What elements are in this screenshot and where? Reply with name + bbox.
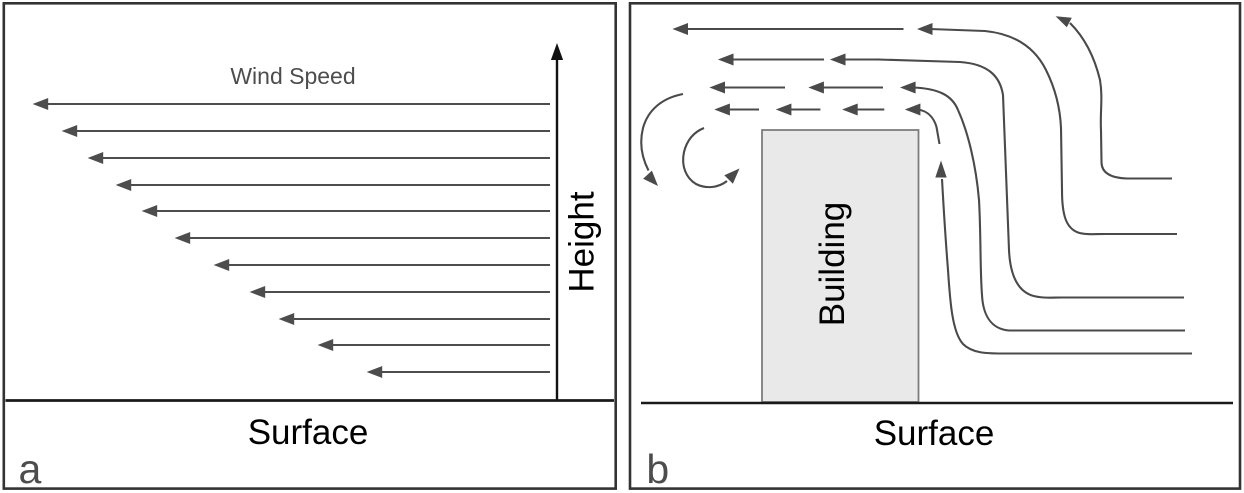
svg-text:b: b <box>646 446 669 492</box>
svg-text:Surface: Surface <box>248 413 369 452</box>
svg-text:Height: Height <box>563 191 602 292</box>
svg-text:Building: Building <box>813 202 852 327</box>
svg-text:Surface: Surface <box>874 414 995 453</box>
svg-text:Wind Speed: Wind Speed <box>230 63 355 89</box>
svg-text:a: a <box>19 446 42 492</box>
